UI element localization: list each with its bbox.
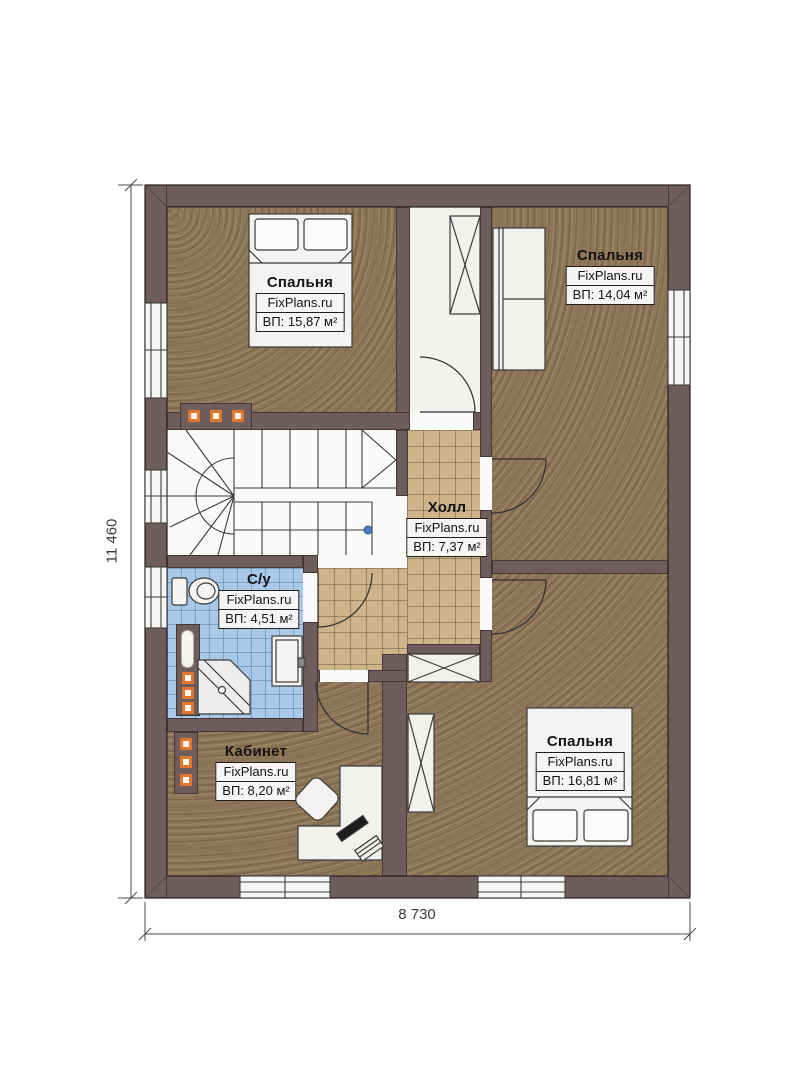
wall-closet-bedroom2 [480, 207, 492, 457]
watermark-text: FixPlans.ru [215, 762, 296, 782]
room-title: Спальня [566, 247, 655, 264]
room-label-bedroom-top-left: Спальня FixPlans.ru ВП: 15,87 м² [256, 274, 345, 332]
wall-bathroom-right-upper [303, 555, 318, 573]
outer-wall-top [145, 185, 690, 207]
wall-bathroom-office [167, 718, 303, 732]
floor-plan-page: Спальня FixPlans.ru ВП: 15,87 м² Спальня… [0, 0, 792, 1080]
room-label-bedroom-bottom-right: Спальня FixPlans.ru ВП: 16,81 м² [536, 733, 625, 791]
bathroom-cabinet-shelf [181, 630, 194, 668]
watermark-text: FixPlans.ru [536, 752, 625, 772]
room-area: ВП: 7,37 м² [406, 537, 487, 557]
watermark-text: FixPlans.ru [566, 266, 655, 286]
dimension-height: 11 460 [104, 519, 121, 564]
watermark-text: FixPlans.ru [256, 293, 345, 313]
room-label-office: Кабинет FixPlans.ru ВП: 8,20 м² [215, 743, 296, 801]
room-area: ВП: 15,87 м² [256, 312, 345, 332]
door-opening-bathroom [303, 573, 318, 622]
room-area: ВП: 4,51 м² [218, 609, 299, 629]
wall-stairs-bathroom [167, 555, 303, 568]
room-title: С/у [218, 571, 299, 588]
room-label-bathroom: С/у FixPlans.ru ВП: 4,51 м² [218, 571, 299, 629]
room-label-hall: Холл FixPlans.ru ВП: 7,37 м² [406, 499, 487, 557]
closet-room-floor [410, 207, 480, 430]
staircase-floor [167, 430, 407, 568]
cabinet-square [182, 672, 194, 684]
room-title: Кабинет [215, 743, 296, 760]
watermark-text: FixPlans.ru [218, 590, 299, 610]
wall-stairs-hall-stub [396, 430, 408, 496]
wall-office-bedroom3 [382, 654, 407, 876]
outer-wall-bottom [145, 876, 690, 898]
door-opening-closet [410, 412, 473, 430]
room-title: Спальня [536, 733, 625, 750]
radiator-square [210, 410, 222, 422]
radiator-square [180, 756, 192, 768]
door-opening-bedroom3 [480, 578, 492, 630]
watermark-text: FixPlans.ru [406, 518, 487, 538]
radiator-square [232, 410, 244, 422]
wall-hall-niche [407, 644, 480, 654]
radiator-square [180, 738, 192, 750]
room-area: ВП: 8,20 м² [215, 781, 296, 801]
cabinet-square [182, 687, 194, 699]
outer-wall-left [145, 185, 167, 898]
wall-office-top-right [368, 670, 407, 682]
room-title: Холл [406, 499, 487, 516]
room-area: ВП: 14,04 м² [566, 285, 655, 305]
radiator-square [180, 774, 192, 786]
outer-wall-right [668, 185, 690, 898]
radiator-square [188, 410, 200, 422]
room-title: Спальня [256, 274, 345, 291]
door-opening-office [320, 670, 368, 682]
cabinet-square [182, 702, 194, 714]
room-area: ВП: 16,81 м² [536, 771, 625, 791]
room-label-bedroom-top-right: Спальня FixPlans.ru ВП: 14,04 м² [566, 247, 655, 305]
wall-bedroom2-bedroom3 [492, 560, 668, 574]
dimension-width: 8 730 [398, 906, 436, 923]
wall-hall-bedroom3 [480, 630, 492, 682]
wall-bedroom1-closet [396, 207, 410, 430]
wall-bathroom-right-lower [303, 622, 318, 732]
